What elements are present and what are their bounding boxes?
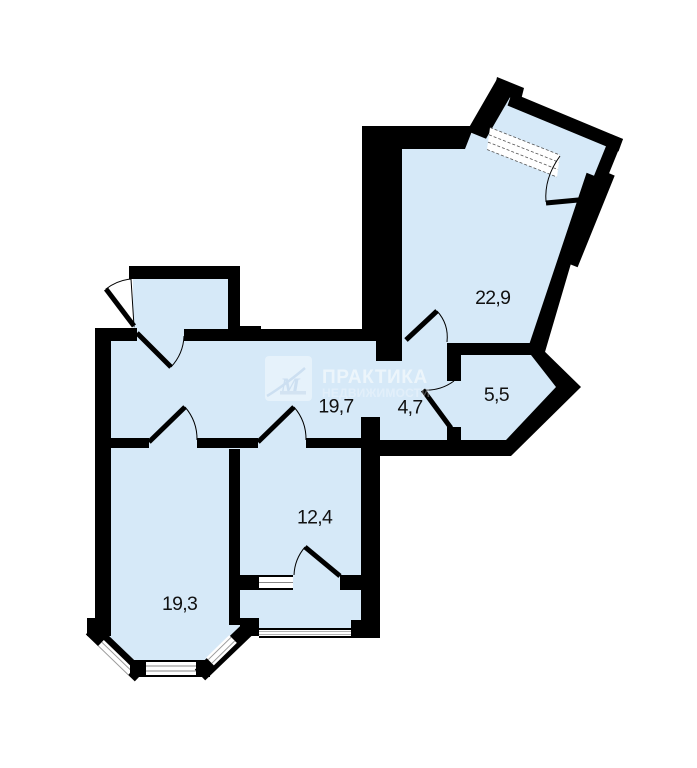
- svg-text:4,7: 4,7: [397, 397, 422, 419]
- svg-text:5,5: 5,5: [484, 384, 510, 406]
- svg-text:19,3: 19,3: [162, 593, 197, 615]
- svg-text:ПРАКТИКА: ПРАКТИКА: [322, 367, 428, 388]
- svg-text:19,7: 19,7: [318, 396, 353, 418]
- svg-text:12,4: 12,4: [297, 507, 333, 529]
- svg-text:22,9: 22,9: [475, 287, 510, 309]
